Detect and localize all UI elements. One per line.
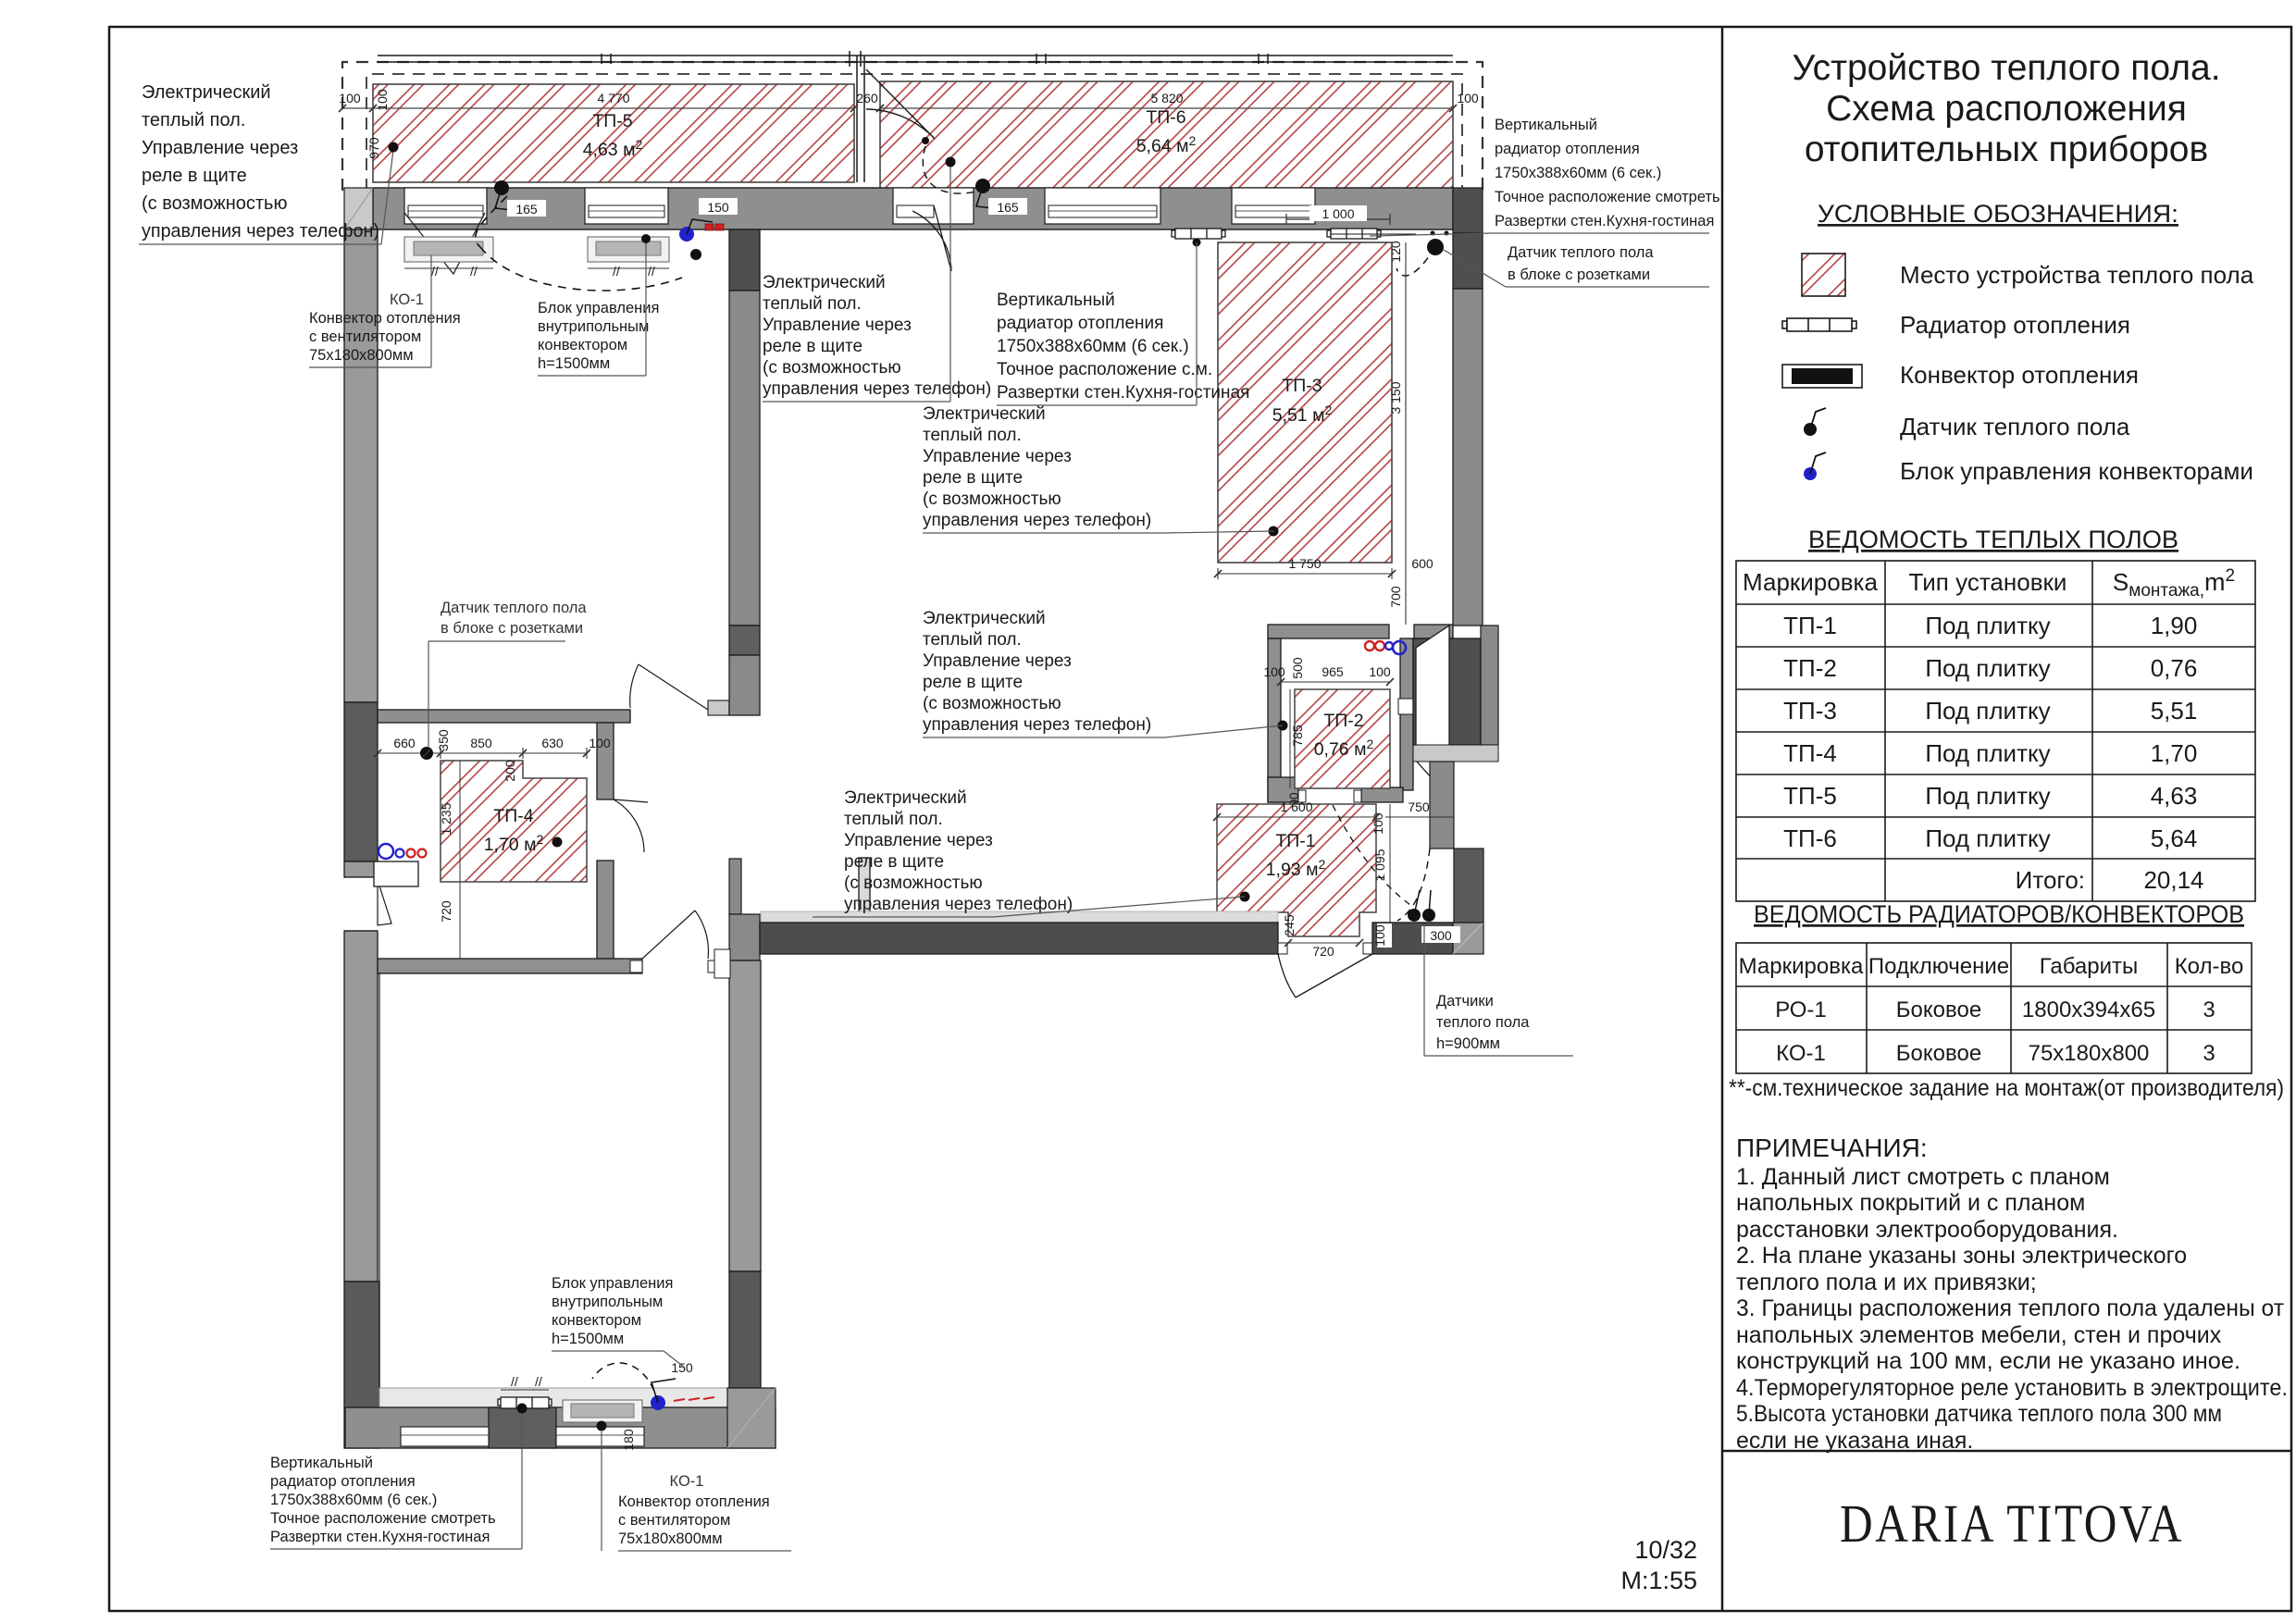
svg-text:если не указана иная.: если не указана иная. <box>1736 1428 1973 1454</box>
svg-text:1,70 м2: 1,70 м2 <box>484 832 544 855</box>
svg-text:4,63 м2: 4,63 м2 <box>583 137 643 160</box>
svg-text://: // <box>535 1374 542 1389</box>
svg-text:радиатор отопления: радиатор отопления <box>1495 141 1640 157</box>
svg-text:ВЕДОМОСТЬ РАДИАТОРОВ/КОНВЕКТОР: ВЕДОМОСТЬ РАДИАТОРОВ/КОНВЕКТОРОВ <box>1754 900 2244 928</box>
svg-text:напольных покрытий и с планом: напольных покрытий и с планом <box>1736 1190 2085 1216</box>
svg-text:Радиатор отопления: Радиатор отопления <box>1900 311 2130 339</box>
svg-text:100: 100 <box>1369 664 1391 679</box>
svg-text:20,14: 20,14 <box>2143 866 2203 894</box>
svg-text:Датчик теплого пола: Датчик теплого пола <box>1508 244 1654 261</box>
svg-text:ТП-6: ТП-6 <box>1146 107 1185 128</box>
svg-text:реле в щите: реле в щите <box>142 166 247 186</box>
svg-text:конвектором: конвектором <box>552 1312 641 1329</box>
svg-text:850: 850 <box>470 736 492 750</box>
svg-text:5,51: 5,51 <box>2151 697 2198 725</box>
svg-text:ТП-1: ТП-1 <box>1783 612 1837 639</box>
svg-text:внутрипольным: внутрипольным <box>552 1294 663 1310</box>
svg-text:DARIA TITOVA: DARIA TITOVA <box>1840 1493 2184 1554</box>
svg-text:УСЛОВНЫЕ ОБОЗНАЧЕНИЯ:: УСЛОВНЫЕ ОБОЗНАЧЕНИЯ: <box>1818 200 2178 228</box>
svg-text:1 600: 1 600 <box>1280 799 1312 814</box>
svg-text:Точное расположение смотреть: Точное расположение смотреть <box>270 1510 496 1527</box>
svg-text:Электрический: Электрический <box>923 609 1046 628</box>
svg-text:h=1500мм: h=1500мм <box>552 1331 624 1347</box>
svg-text:1 235: 1 235 <box>439 802 453 835</box>
svg-text:660: 660 <box>393 736 416 750</box>
svg-text:Под плитку: Под плитку <box>1925 739 2050 767</box>
svg-text:ВЕДОМОСТЬ ТЕПЛЫХ ПОЛОВ: ВЕДОМОСТЬ ТЕПЛЫХ ПОЛОВ <box>1808 526 2178 553</box>
svg-text:Блок управления конвекторами: Блок управления конвекторами <box>1900 457 2253 485</box>
svg-text:Электрический: Электрический <box>142 82 271 103</box>
svg-text:100: 100 <box>1372 924 1387 947</box>
svg-text:Итого:: Итого: <box>2016 866 2085 894</box>
svg-text:5.Высота установки датчика теп: 5.Высота установки датчика теплого пола … <box>1736 1401 2222 1427</box>
svg-text:управления через телефон): управления через телефон) <box>923 511 1151 530</box>
svg-text:10/32: 10/32 <box>1634 1536 1697 1564</box>
svg-text:Датчики: Датчики <box>1436 993 1494 1010</box>
svg-text:Конвектор отопления: Конвектор отопления <box>309 310 461 327</box>
svg-text:Под плитку: Под плитку <box>1925 782 2050 810</box>
svg-text:Подключение: Подключение <box>1868 954 2009 979</box>
svg-text:реле в щите: реле в щите <box>844 852 944 872</box>
svg-text:1750х388х60мм (6 сек.): 1750х388х60мм (6 сек.) <box>1495 165 1661 181</box>
svg-text:965: 965 <box>1322 664 1344 679</box>
svg-text:Маркировка: Маркировка <box>1739 954 1864 979</box>
svg-text:Боковое: Боковое <box>1896 997 1981 1022</box>
svg-text:500: 500 <box>1290 657 1305 679</box>
svg-text:ПРИМЕЧАНИЯ:: ПРИМЕЧАНИЯ: <box>1736 1134 1928 1162</box>
svg-text:75х180х800: 75х180х800 <box>2029 1041 2150 1066</box>
svg-text:радиатор отопления: радиатор отопления <box>270 1473 416 1490</box>
svg-text:Точное расположение смотреть: Точное расположение смотреть <box>1495 189 1720 205</box>
svg-text:Место устройства теплого пола: Место устройства теплого пола <box>1900 261 2254 289</box>
svg-text:Маркировка: Маркировка <box>1743 568 1878 596</box>
svg-text:теплый пол.: теплый пол. <box>844 810 943 829</box>
svg-text:Развертки стен.Кухня-гостиная: Развертки стен.Кухня-гостиная <box>1495 213 1714 229</box>
svg-text:1750х388х60мм (6 сек.): 1750х388х60мм (6 сек.) <box>997 337 1189 356</box>
svg-text:Развертки стен.Кухня-гостиная: Развертки стен.Кухня-гостиная <box>270 1529 490 1545</box>
svg-text:Конвектор отопления: Конвектор отопления <box>1900 361 2139 389</box>
svg-text:РО-1: РО-1 <box>1775 997 1827 1022</box>
svg-text:напольных элементов мебели, ст: напольных элементов мебели, стен и прочи… <box>1736 1322 2222 1348</box>
svg-text:теплый пол.: теплый пол. <box>923 630 1022 650</box>
svg-text:180: 180 <box>621 1429 636 1451</box>
svg-text:630: 630 <box>541 736 564 750</box>
svg-text:Устройство теплого пола.: Устройство теплого пола. <box>1792 48 2220 88</box>
svg-text:реле в щите: реле в щите <box>763 337 863 356</box>
svg-text:260: 260 <box>856 91 878 105</box>
svg-text:165: 165 <box>515 202 538 217</box>
svg-text:управления через телефон): управления через телефон) <box>844 895 1073 914</box>
svg-text:700: 700 <box>1388 586 1403 608</box>
svg-text:3 150: 3 150 <box>1388 381 1403 414</box>
svg-text:5,64: 5,64 <box>2151 824 2198 852</box>
svg-text:1750х388х60мм (6 сек.): 1750х388х60мм (6 сек.) <box>270 1492 437 1508</box>
svg-text:1 000: 1 000 <box>1322 206 1354 221</box>
svg-text:720: 720 <box>439 900 453 923</box>
svg-text:1,90: 1,90 <box>2151 612 2198 639</box>
svg-text:245: 245 <box>1282 914 1297 936</box>
svg-text:1,93 м2: 1,93 м2 <box>1266 857 1326 880</box>
svg-text:300: 300 <box>1430 928 1452 943</box>
svg-text:h=1500мм: h=1500мм <box>538 355 610 372</box>
svg-text:75х180х800мм: 75х180х800мм <box>618 1530 723 1547</box>
svg-text:0,76 м2: 0,76 м2 <box>1314 737 1374 760</box>
svg-text:Блок управления: Блок управления <box>552 1275 673 1292</box>
svg-text:Под плитку: Под плитку <box>1925 697 2050 725</box>
svg-text:отопительных приборов: отопительных приборов <box>1805 130 2208 169</box>
svg-text:Боковое: Боковое <box>1896 1041 1981 1066</box>
svg-text:теплый пол.: теплый пол. <box>142 110 245 130</box>
svg-text:КО-1: КО-1 <box>390 291 424 308</box>
svg-text:КО-1: КО-1 <box>670 1473 704 1490</box>
svg-text:(с возможностью: (с возможностью <box>923 694 1061 713</box>
svg-text:1,70: 1,70 <box>2151 739 2198 767</box>
svg-text:ТП-2: ТП-2 <box>1323 711 1363 731</box>
svg-text:4.Терморегуляторное реле устан: 4.Терморегуляторное реле установить в эл… <box>1736 1375 2288 1401</box>
svg-text:0,76: 0,76 <box>2151 654 2198 682</box>
svg-text:350: 350 <box>436 729 451 751</box>
svg-text:750: 750 <box>1408 799 1430 814</box>
svg-text://: // <box>431 264 439 279</box>
svg-text:1. Данный лист смотреть с план: 1. Данный лист смотреть с планом <box>1736 1164 2110 1190</box>
svg-text:Схема расположения: Схема расположения <box>1826 89 2187 129</box>
svg-text:Электрический: Электрический <box>923 404 1046 424</box>
svg-text://: // <box>470 264 478 279</box>
svg-text:150: 150 <box>671 1360 693 1375</box>
svg-text:Управление через: Управление через <box>923 651 1072 671</box>
svg-text:с вентилятором: с вентилятором <box>309 328 421 345</box>
svg-text:5,51 м2: 5,51 м2 <box>1272 403 1333 426</box>
svg-text:970: 970 <box>366 137 381 159</box>
svg-text:теплый пол.: теплый пол. <box>763 294 862 314</box>
svg-text:управления через телефон): управления через телефон) <box>142 221 379 242</box>
svg-text:75х180х800мм: 75х180х800мм <box>309 347 414 364</box>
svg-text:Точное расположение с.м.: Точное расположение с.м. <box>997 360 1212 379</box>
svg-text:теплый пол.: теплый пол. <box>923 426 1022 445</box>
svg-text:внутрипольным: внутрипольным <box>538 318 649 335</box>
svg-text:150: 150 <box>707 200 729 215</box>
svg-text:100: 100 <box>339 91 361 105</box>
svg-text:600: 600 <box>1411 556 1433 571</box>
svg-text:h=900мм: h=900мм <box>1436 1035 1500 1052</box>
svg-text:Под плитку: Под плитку <box>1925 654 2050 682</box>
svg-text:100: 100 <box>1457 91 1479 105</box>
svg-text:Развертки стен.Кухня-гостиная: Развертки стен.Кухня-гостиная <box>997 383 1249 403</box>
svg-text:Управление через: Управление через <box>763 316 912 335</box>
svg-text://: // <box>648 264 655 279</box>
svg-text:ТП-5: ТП-5 <box>592 111 632 131</box>
svg-text:1 750: 1 750 <box>1288 556 1321 571</box>
svg-text:ТП-3: ТП-3 <box>1783 697 1837 725</box>
svg-text:конвектором: конвектором <box>538 337 627 353</box>
svg-text:100: 100 <box>1263 664 1285 679</box>
svg-text:3: 3 <box>2203 997 2215 1022</box>
svg-text://: // <box>613 264 620 279</box>
svg-text:Датчик теплого пола: Датчик теплого пола <box>441 600 587 616</box>
svg-text:Блок управления: Блок управления <box>538 300 659 316</box>
svg-text:Конвектор отопления: Конвектор отопления <box>618 1493 770 1510</box>
svg-text:3: 3 <box>2203 1041 2215 1066</box>
svg-text:Под плитку: Под плитку <box>1925 824 2050 852</box>
svg-text:Управление через: Управление через <box>923 447 1072 466</box>
svg-text:ТП-2: ТП-2 <box>1783 654 1837 682</box>
svg-text:Электрический: Электрический <box>844 788 967 808</box>
svg-text:ТП-6: ТП-6 <box>1783 824 1837 852</box>
svg-text:с вентилятором: с вентилятором <box>618 1512 730 1529</box>
svg-text:Кол-во: Кол-во <box>2175 954 2244 979</box>
svg-text:Датчик теплого пола: Датчик теплого пола <box>1900 413 2130 440</box>
svg-text:Вертикальный: Вертикальный <box>997 291 1115 310</box>
svg-text:785: 785 <box>1290 725 1305 747</box>
svg-text:Под плитку: Под плитку <box>1925 612 2050 639</box>
svg-text:Габариты: Габариты <box>2040 954 2139 979</box>
svg-text:Управление через: Управление через <box>844 831 993 850</box>
svg-text:Тип установки: Тип установки <box>1909 568 2067 596</box>
svg-text:конструкций на 100 мм, если не: конструкций на 100 мм, если не указано и… <box>1736 1348 2240 1374</box>
svg-text:М:1:55: М:1:55 <box>1620 1567 1697 1594</box>
svg-text:(с возможностью: (с возможностью <box>844 873 983 893</box>
svg-text:реле в щите: реле в щите <box>923 468 1023 488</box>
svg-text:2. На плане указаны зоны элект: 2. На плане указаны зоны электрического <box>1736 1243 2187 1269</box>
svg-text:5 820: 5 820 <box>1150 91 1183 105</box>
svg-text:200: 200 <box>503 760 517 782</box>
svg-text:КО-1: КО-1 <box>1776 1041 1826 1066</box>
svg-text:(с возможностью: (с возможностью <box>142 193 287 214</box>
svg-text:3. Границы расположения теплог: 3. Границы расположения теплого пола уда… <box>1736 1295 2285 1321</box>
svg-text:1800х394х65: 1800х394х65 <box>2022 997 2155 1022</box>
svg-text:165: 165 <box>997 200 1019 215</box>
svg-text:управления через телефон): управления через телефон) <box>763 379 991 399</box>
svg-text:ТП-1: ТП-1 <box>1275 831 1315 851</box>
svg-text:радиатор отопления: радиатор отопления <box>997 314 1163 333</box>
svg-text:теплого пола: теплого пола <box>1436 1014 1530 1031</box>
svg-text:100: 100 <box>589 736 611 750</box>
svg-text:(с возможностью: (с возможностью <box>923 489 1061 509</box>
svg-text:управления через телефон): управления через телефон) <box>923 715 1151 735</box>
svg-text:в блоке с розетками: в блоке с розетками <box>441 620 583 637</box>
svg-text:4 770: 4 770 <box>597 91 629 105</box>
svg-text:Электрический: Электрический <box>763 273 886 292</box>
svg-text:720: 720 <box>1312 944 1334 959</box>
svg-text:Управление через: Управление через <box>142 138 298 158</box>
svg-text:5,64 м2: 5,64 м2 <box>1136 133 1197 156</box>
svg-text:Вертикальный: Вертикальный <box>270 1455 373 1471</box>
svg-text:ТП-4: ТП-4 <box>1783 739 1837 767</box>
svg-text:расстановки электрооборудовани: расстановки электрооборудования. <box>1736 1217 2118 1243</box>
svg-text:Вертикальный: Вертикальный <box>1495 117 1597 133</box>
svg-text:ТП-3: ТП-3 <box>1282 376 1322 396</box>
svg-text:в блоке с розетками: в блоке с розетками <box>1508 266 1650 283</box>
svg-text:**-см.техническое задание на м: **-см.техническое задание на монтаж(от п… <box>1729 1075 2284 1101</box>
svg-text:100: 100 <box>375 89 390 111</box>
svg-text:реле в щите: реле в щите <box>923 673 1023 692</box>
svg-text://: // <box>511 1374 518 1389</box>
svg-text:ТП-5: ТП-5 <box>1783 782 1837 810</box>
svg-text:теплого пола и их привязки;: теплого пола и их привязки; <box>1736 1270 2037 1295</box>
svg-text:ТП-4: ТП-4 <box>493 806 533 826</box>
svg-text:4,63: 4,63 <box>2151 782 2198 810</box>
svg-text:(с возможностью: (с возможностью <box>763 358 901 378</box>
